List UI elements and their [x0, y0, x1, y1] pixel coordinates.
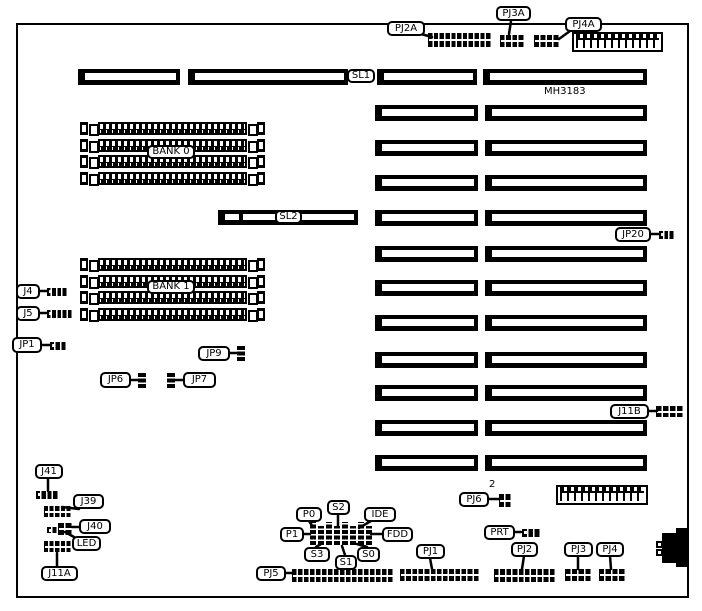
expansion-slot [375, 420, 478, 436]
label-p1: P1 [280, 527, 304, 542]
label-pj3: PJ3 [564, 542, 593, 557]
pj4-connector [599, 569, 626, 581]
bank-0-simm-socket [80, 172, 265, 185]
label-j5: J5 [16, 306, 40, 321]
label-pj2a: PJ2A [387, 21, 425, 36]
port-pin-strip [318, 526, 324, 545]
expansion-slot [375, 352, 478, 368]
label-pj6: PJ6 [459, 492, 489, 507]
expansion-slot [188, 69, 348, 85]
power-connector-bottom [556, 485, 648, 505]
expansion-slot [485, 175, 647, 191]
expansion-slot [375, 385, 478, 401]
port-pin-strip [326, 522, 332, 545]
label-j39: J39 [73, 494, 104, 509]
label-led: LED [72, 536, 101, 551]
expansion-slot [375, 105, 478, 121]
expansion-slot [485, 455, 647, 471]
port-pin-strip [334, 526, 340, 545]
j40-connector [58, 523, 73, 535]
label-s2: S2 [327, 500, 350, 515]
jp20-connector [659, 231, 675, 239]
power-connector-top [572, 32, 663, 52]
label-sl1: SL1 [347, 69, 375, 83]
bank-1-simm-socket [80, 258, 265, 271]
label-s3: S3 [304, 547, 330, 562]
label-j41: J41 [35, 464, 63, 479]
pj3a-connector [500, 35, 525, 47]
label-pj3a: PJ3A [496, 6, 531, 21]
label-j11b: J11B [610, 404, 649, 419]
expansion-slot [485, 315, 647, 331]
expansion-slot [375, 210, 478, 226]
j11b-connector [656, 406, 684, 417]
port-pin-strip [310, 522, 316, 545]
pj3-connector [565, 569, 592, 581]
port-pin-strip [366, 526, 372, 545]
expansion-slot [375, 140, 478, 156]
expansion-slot [485, 420, 647, 436]
motherboard-layout-diagram: PJ2APJ3APJ4ASL1MH3183BANK 0SL2JP20J4J5BA… [0, 0, 702, 611]
expansion-slot [483, 69, 647, 85]
expansion-slot [485, 210, 647, 226]
j5-connector [47, 310, 73, 318]
label-s1: S1 [335, 555, 357, 570]
expansion-slot [485, 140, 647, 156]
jp9-connector [237, 345, 245, 361]
j4-connector [47, 288, 68, 296]
expansion-slot [375, 175, 478, 191]
pj1-connector [400, 569, 480, 581]
pj6-connector [499, 494, 512, 507]
bank-1-simm-socket [80, 308, 265, 321]
label-jp6: JP6 [100, 372, 131, 388]
expansion-slot [485, 105, 647, 121]
label-sl2: SL2 [275, 210, 302, 224]
label-jp7: JP7 [183, 372, 216, 388]
label-mh3183: MH3183 [544, 86, 590, 98]
expansion-slot [485, 280, 647, 296]
expansion-slot [485, 352, 647, 368]
label-s0: S0 [357, 547, 380, 562]
port-pin-strip [358, 522, 364, 545]
expansion-slot [375, 315, 478, 331]
label-pj4a: PJ4A [565, 17, 602, 32]
din-connector-pin [656, 549, 663, 556]
pj2-connector [494, 569, 556, 582]
label-pj4: PJ4 [596, 542, 624, 557]
pj5-connector [292, 569, 394, 582]
j40-aux-connector [47, 527, 58, 533]
label-bank0: BANK 0 [147, 145, 195, 159]
label-jp9: JP9 [198, 346, 230, 361]
j11a-connector [44, 541, 72, 552]
label-ide: IDE [364, 507, 396, 522]
label-pj1: PJ1 [416, 544, 445, 559]
label-pj2: PJ2 [511, 542, 538, 557]
label-fdd: FDD [382, 527, 413, 542]
jp6-connector [138, 372, 146, 388]
label-pj5: PJ5 [256, 566, 286, 581]
label-jp20: JP20 [615, 227, 651, 242]
port-pin-strip [350, 526, 356, 545]
expansion-slot [375, 246, 478, 262]
label-j4: J4 [16, 284, 40, 299]
label-bank1: BANK 1 [147, 280, 195, 294]
j39-connector [44, 506, 72, 517]
expansion-slot [78, 69, 180, 85]
label-p0: P0 [296, 507, 322, 522]
label-prt: PRT [484, 525, 515, 540]
prt-connector [522, 529, 541, 537]
din-connector-pin [656, 541, 663, 548]
expansion-slot [375, 455, 478, 471]
label-pj6-count: 2 [489, 479, 499, 491]
bank-0-simm-socket [80, 122, 265, 135]
port-pin-strip [342, 522, 348, 545]
label-jp1: JP1 [12, 337, 42, 353]
din-connector [676, 528, 689, 567]
j41-connector [36, 491, 59, 499]
label-j40: J40 [79, 519, 111, 534]
expansion-slot [485, 385, 647, 401]
expansion-slot [377, 69, 477, 85]
jp1-connector [50, 342, 67, 350]
jp7-connector [167, 372, 175, 388]
pj2a-connector [428, 33, 492, 47]
expansion-slot [375, 280, 478, 296]
pj4a-connector [534, 35, 560, 47]
expansion-slot [485, 246, 647, 262]
label-j11a: J11A [41, 566, 78, 581]
